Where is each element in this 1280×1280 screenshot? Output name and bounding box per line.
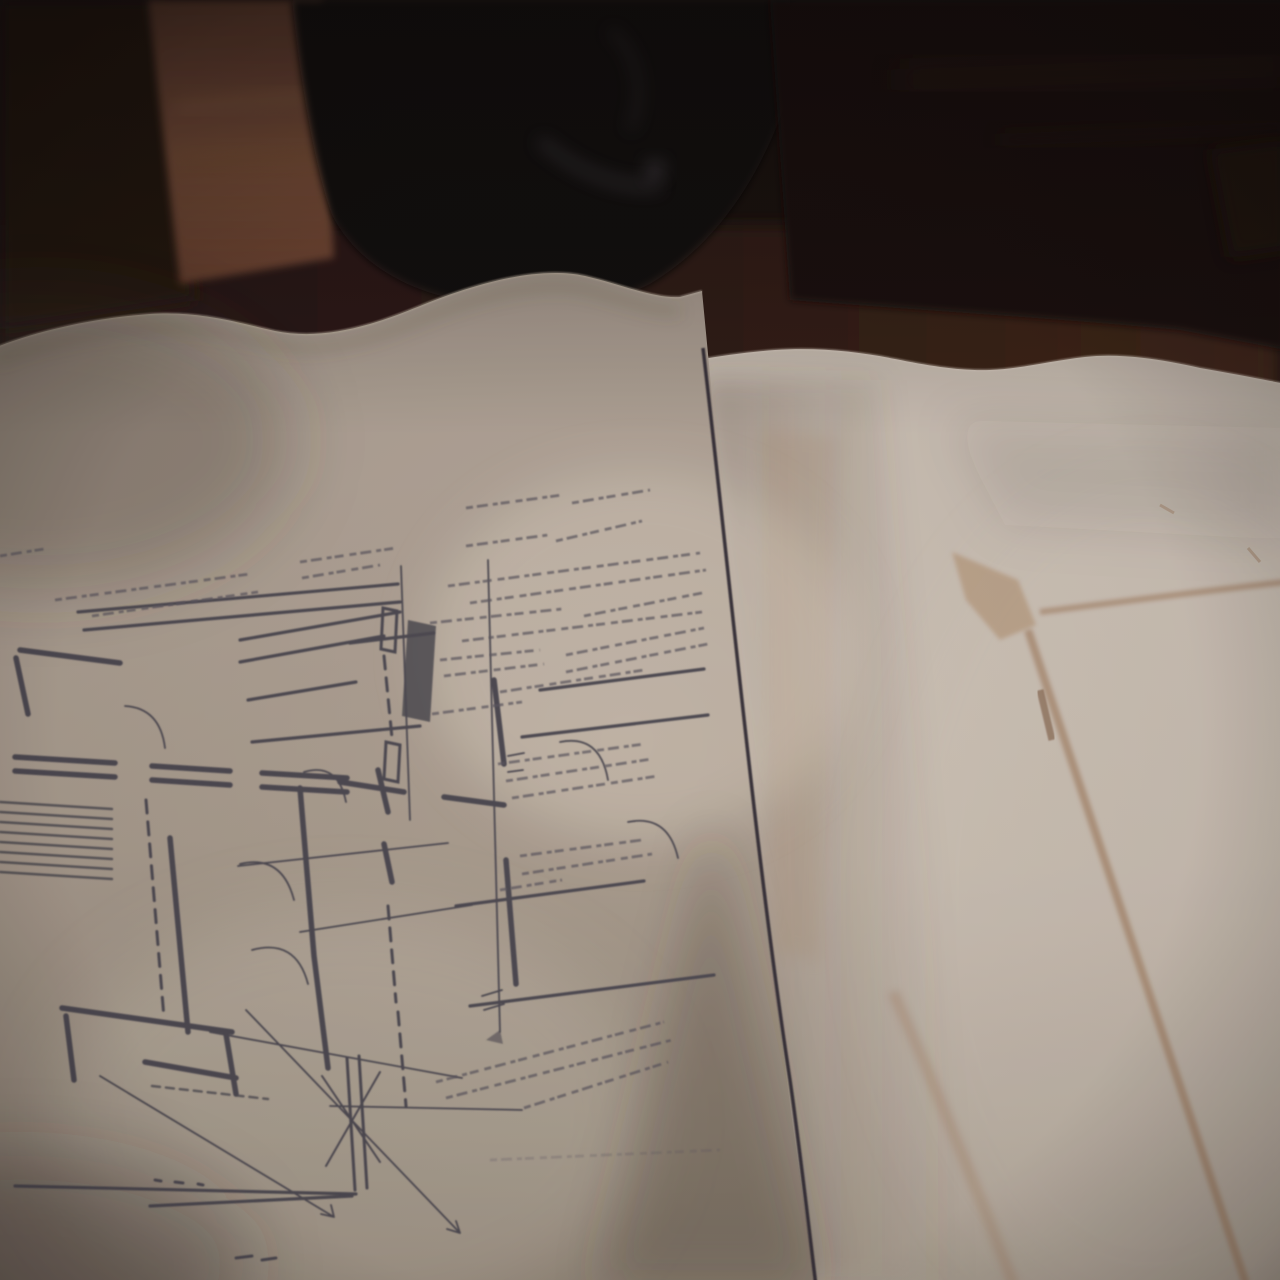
- warm-cast: [0, 0, 1280, 1280]
- blueprint-photo: [0, 0, 1280, 1280]
